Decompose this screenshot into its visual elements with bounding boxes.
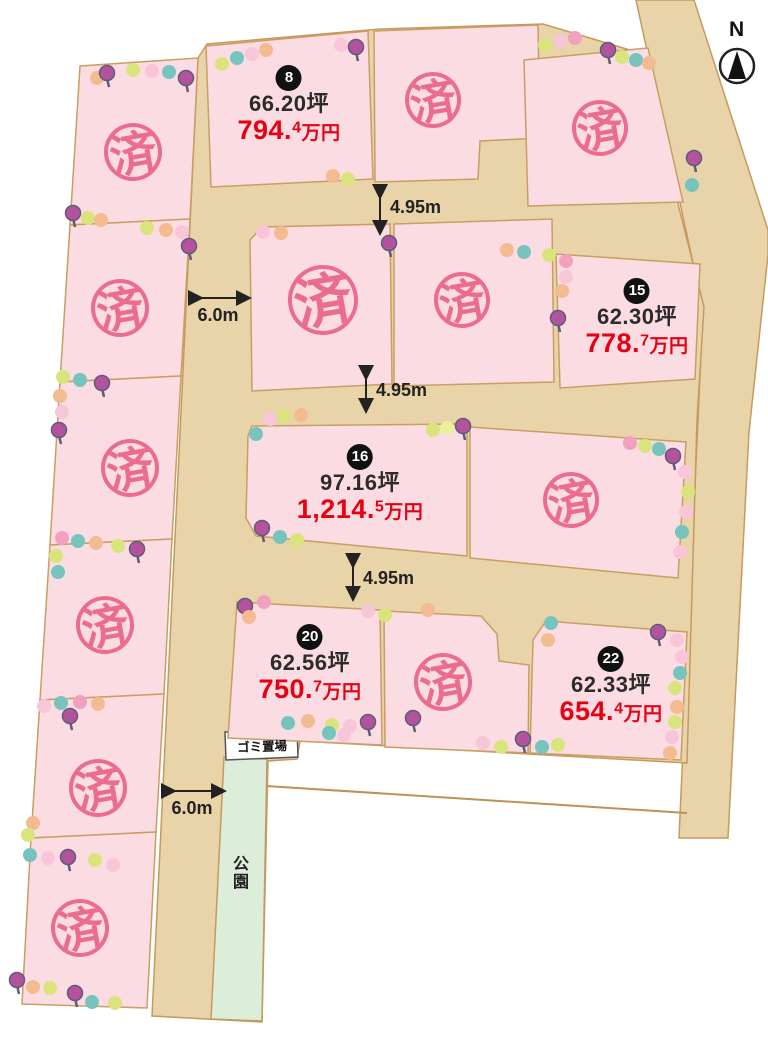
- tree-icon: [361, 715, 376, 730]
- plot-number-badge: 16: [347, 444, 373, 470]
- tree-icon: [130, 542, 145, 557]
- tree-icon: [290, 533, 304, 547]
- tree-icon: [230, 51, 244, 65]
- tree-icon: [182, 239, 197, 254]
- tree-icon: [81, 211, 95, 225]
- tree-icon: [553, 34, 567, 48]
- tree-icon: [670, 633, 684, 647]
- dim-label-width-bottom: 6.0m: [162, 798, 222, 819]
- tree-icon: [685, 178, 699, 192]
- tree-icon: [544, 616, 558, 630]
- tree-icon: [263, 412, 277, 426]
- tree-icon: [294, 408, 308, 422]
- tree-icon: [66, 206, 81, 221]
- tree-icon: [334, 38, 348, 52]
- garbage-area-label: ゴミ置場: [226, 732, 299, 758]
- tree-icon: [73, 695, 87, 709]
- tree-icon: [551, 311, 566, 326]
- tree-icon: [663, 746, 677, 760]
- tree-icon: [675, 525, 689, 539]
- tree-icon: [623, 436, 637, 450]
- plot-20-label: 20 62.56坪 750.7万円: [259, 624, 362, 704]
- tree-icon: [91, 697, 105, 711]
- tree-icon: [559, 270, 573, 284]
- tree-icon: [245, 47, 259, 61]
- tree-icon: [541, 633, 555, 647]
- tree-icon: [406, 711, 421, 726]
- tree-icon: [517, 245, 531, 259]
- tree-icon: [673, 666, 687, 680]
- tree-icon: [10, 973, 25, 988]
- tree-icon: [681, 485, 695, 499]
- tree-icon: [88, 853, 102, 867]
- tree-icon: [89, 536, 103, 550]
- tree-icon: [651, 625, 666, 640]
- tree-icon: [126, 63, 140, 77]
- tree-icon: [242, 610, 256, 624]
- tree-icon: [542, 248, 556, 262]
- tree-icon: [642, 56, 656, 70]
- plot-price: 654.4万円: [560, 697, 663, 726]
- tree-icon: [559, 254, 573, 268]
- plot-area: 97.16坪: [297, 471, 424, 495]
- tree-icon: [601, 43, 616, 58]
- tree-icon: [26, 980, 40, 994]
- tree-icon: [274, 226, 288, 240]
- tree-icon: [52, 423, 67, 438]
- tree-icon: [85, 995, 99, 1009]
- tree-icon: [162, 65, 176, 79]
- tree-icon: [382, 236, 397, 251]
- tree-icon: [476, 736, 490, 750]
- tree-icon: [378, 608, 392, 622]
- plot-area: 62.56坪: [259, 651, 362, 675]
- plot-number-badge: 20: [297, 624, 323, 650]
- tree-icon: [421, 603, 435, 617]
- tree-icon: [629, 53, 643, 67]
- tree-icon: [361, 604, 375, 618]
- tree-icon: [322, 726, 336, 740]
- tree-icon: [326, 169, 340, 183]
- plot-15-label: 15 62.30坪 778.7万円: [586, 278, 689, 358]
- dim-label-road3: 4.95m: [363, 568, 414, 589]
- tree-icon: [94, 213, 108, 227]
- plot-price: 794.4万円: [238, 116, 341, 145]
- tree-icon: [349, 40, 364, 55]
- tree-icon: [341, 172, 355, 186]
- plot-16-label: 16 97.16坪 1,214.5万円: [297, 444, 424, 524]
- tree-icon: [687, 151, 702, 166]
- tree-icon: [273, 530, 287, 544]
- tree-icon: [61, 850, 76, 865]
- tree-icon: [568, 31, 582, 45]
- tree-icon: [679, 505, 693, 519]
- plot-price: 778.7万円: [586, 329, 689, 358]
- plot-price: 1,214.5万円: [297, 495, 424, 524]
- tree-icon: [140, 221, 154, 235]
- tree-icon: [111, 539, 125, 553]
- plot-number-badge: 22: [598, 646, 624, 672]
- tree-icon: [55, 405, 69, 419]
- tree-icon: [108, 996, 122, 1010]
- tree-icon: [106, 858, 120, 872]
- tree-icon: [535, 740, 549, 754]
- tree-icon: [551, 738, 565, 752]
- plot-price: 750.7万円: [259, 675, 362, 704]
- park-label: 公園: [228, 855, 250, 891]
- tree-icon: [456, 419, 471, 434]
- tree-icon: [277, 409, 291, 423]
- plot-area: 66.20坪: [238, 92, 341, 116]
- tree-icon: [494, 740, 508, 754]
- tree-icon: [26, 816, 40, 830]
- tree-icon: [673, 545, 687, 559]
- tree-icon: [538, 38, 552, 52]
- tree-icon: [71, 534, 85, 548]
- tree-icon: [668, 681, 682, 695]
- tree-icon: [56, 370, 70, 384]
- tree-icon: [51, 565, 65, 579]
- tree-icon: [259, 43, 273, 57]
- tree-icon: [255, 521, 270, 536]
- tree-icon: [63, 709, 78, 724]
- tree-icon: [49, 549, 63, 563]
- tree-icon: [440, 421, 454, 435]
- tree-icon: [100, 66, 115, 81]
- tree-icon: [55, 531, 69, 545]
- tree-icon: [668, 715, 682, 729]
- tree-icon: [215, 57, 229, 71]
- adjacent-road-line: [266, 786, 687, 813]
- tree-icon: [41, 851, 55, 865]
- dim-label-road2: 4.95m: [376, 380, 427, 401]
- tree-icon: [500, 243, 514, 257]
- tree-icon: [670, 700, 684, 714]
- tree-icon: [37, 699, 51, 713]
- dim-label-width-top: 6.0m: [188, 305, 248, 326]
- tree-icon: [21, 828, 35, 842]
- compass: [720, 49, 754, 83]
- tree-icon: [555, 284, 569, 298]
- plot-22-label: 22 62.33坪 654.4万円: [560, 646, 663, 726]
- land-subdivision-map: 済済済済済済済済済済済済 N 8 66.20坪 794.4万円 15 62.30…: [0, 0, 768, 1039]
- plot-8-label: 8 66.20坪 794.4万円: [238, 65, 341, 145]
- tree-icon: [179, 71, 194, 86]
- sold-stamp-text: 済: [289, 265, 358, 339]
- plot-area: 62.30坪: [586, 305, 689, 329]
- tree-icon: [675, 650, 689, 664]
- tree-icon: [678, 465, 692, 479]
- tree-icon: [337, 728, 351, 742]
- tree-icon: [23, 848, 37, 862]
- tree-icon: [53, 389, 67, 403]
- tree-icon: [43, 981, 57, 995]
- tree-icon: [615, 50, 629, 64]
- tree-icon: [638, 439, 652, 453]
- tree-icon: [256, 225, 270, 239]
- tree-icon: [159, 223, 173, 237]
- tree-icon: [145, 64, 159, 78]
- plot-number-badge: 15: [624, 278, 650, 304]
- tree-icon: [652, 442, 666, 456]
- tree-icon: [281, 716, 295, 730]
- north-label: N: [729, 18, 744, 42]
- tree-icon: [73, 373, 87, 387]
- tree-icon: [68, 986, 83, 1001]
- tree-icon: [665, 730, 679, 744]
- plot-area: 62.33坪: [560, 673, 663, 697]
- tree-icon: [249, 427, 263, 441]
- tree-icon: [54, 696, 68, 710]
- tree-icon: [175, 225, 189, 239]
- dim-label-road1: 4.95m: [390, 197, 441, 218]
- tree-icon: [257, 595, 271, 609]
- tree-icon: [516, 732, 531, 747]
- tree-icon: [301, 714, 315, 728]
- tree-icon: [95, 376, 110, 391]
- plot-number-badge: 8: [276, 65, 302, 91]
- tree-icon: [666, 449, 681, 464]
- tree-icon: [426, 423, 440, 437]
